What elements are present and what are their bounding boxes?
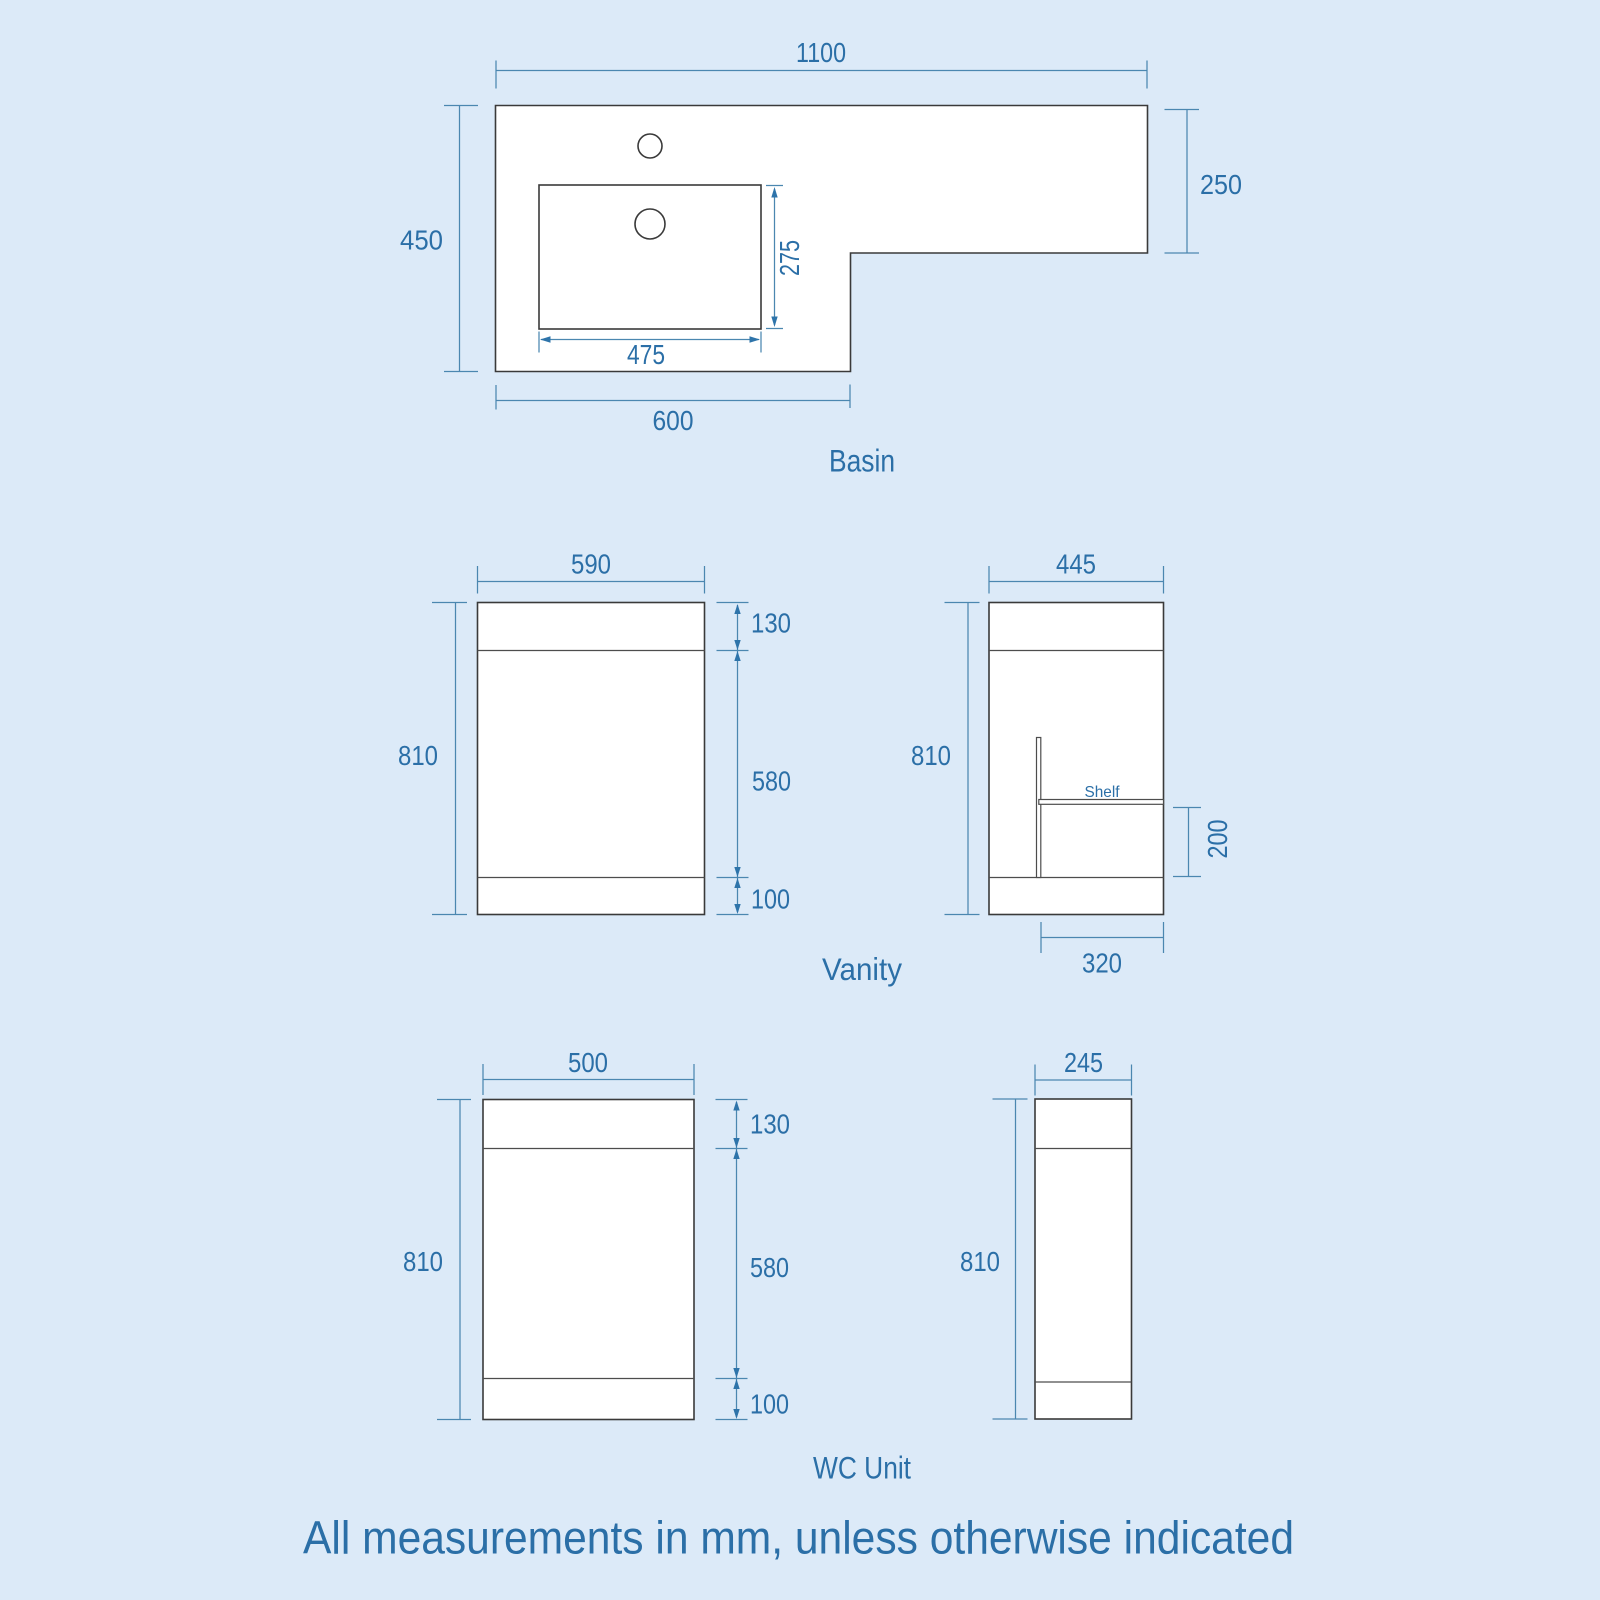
svg-text:810: 810 [403,1246,443,1277]
svg-text:445: 445 [1056,549,1096,580]
svg-text:600: 600 [653,405,694,436]
svg-text:810: 810 [398,740,438,771]
svg-text:1100: 1100 [796,37,846,68]
svg-text:580: 580 [750,1252,789,1283]
svg-text:475: 475 [627,339,665,370]
svg-text:275: 275 [774,240,805,276]
svg-text:590: 590 [571,549,611,580]
svg-text:100: 100 [750,1389,789,1420]
svg-text:200: 200 [1202,820,1233,859]
svg-text:130: 130 [750,1109,790,1140]
svg-text:580: 580 [752,766,791,797]
svg-text:450: 450 [400,225,443,256]
svg-text:Basin: Basin [829,443,895,479]
svg-text:Vanity: Vanity [822,951,902,987]
svg-text:245: 245 [1064,1047,1103,1078]
svg-text:810: 810 [960,1246,1000,1277]
svg-text:810: 810 [911,740,951,771]
svg-text:500: 500 [568,1047,608,1078]
svg-text:WC Unit: WC Unit [813,1450,911,1486]
svg-text:130: 130 [751,608,791,639]
svg-text:250: 250 [1200,169,1242,200]
svg-text:All measurements in mm, unless: All measurements in mm, unless otherwise… [303,1512,1294,1564]
svg-text:320: 320 [1082,948,1122,979]
svg-text:100: 100 [751,884,790,915]
svg-text:Shelf: Shelf [1085,784,1121,801]
